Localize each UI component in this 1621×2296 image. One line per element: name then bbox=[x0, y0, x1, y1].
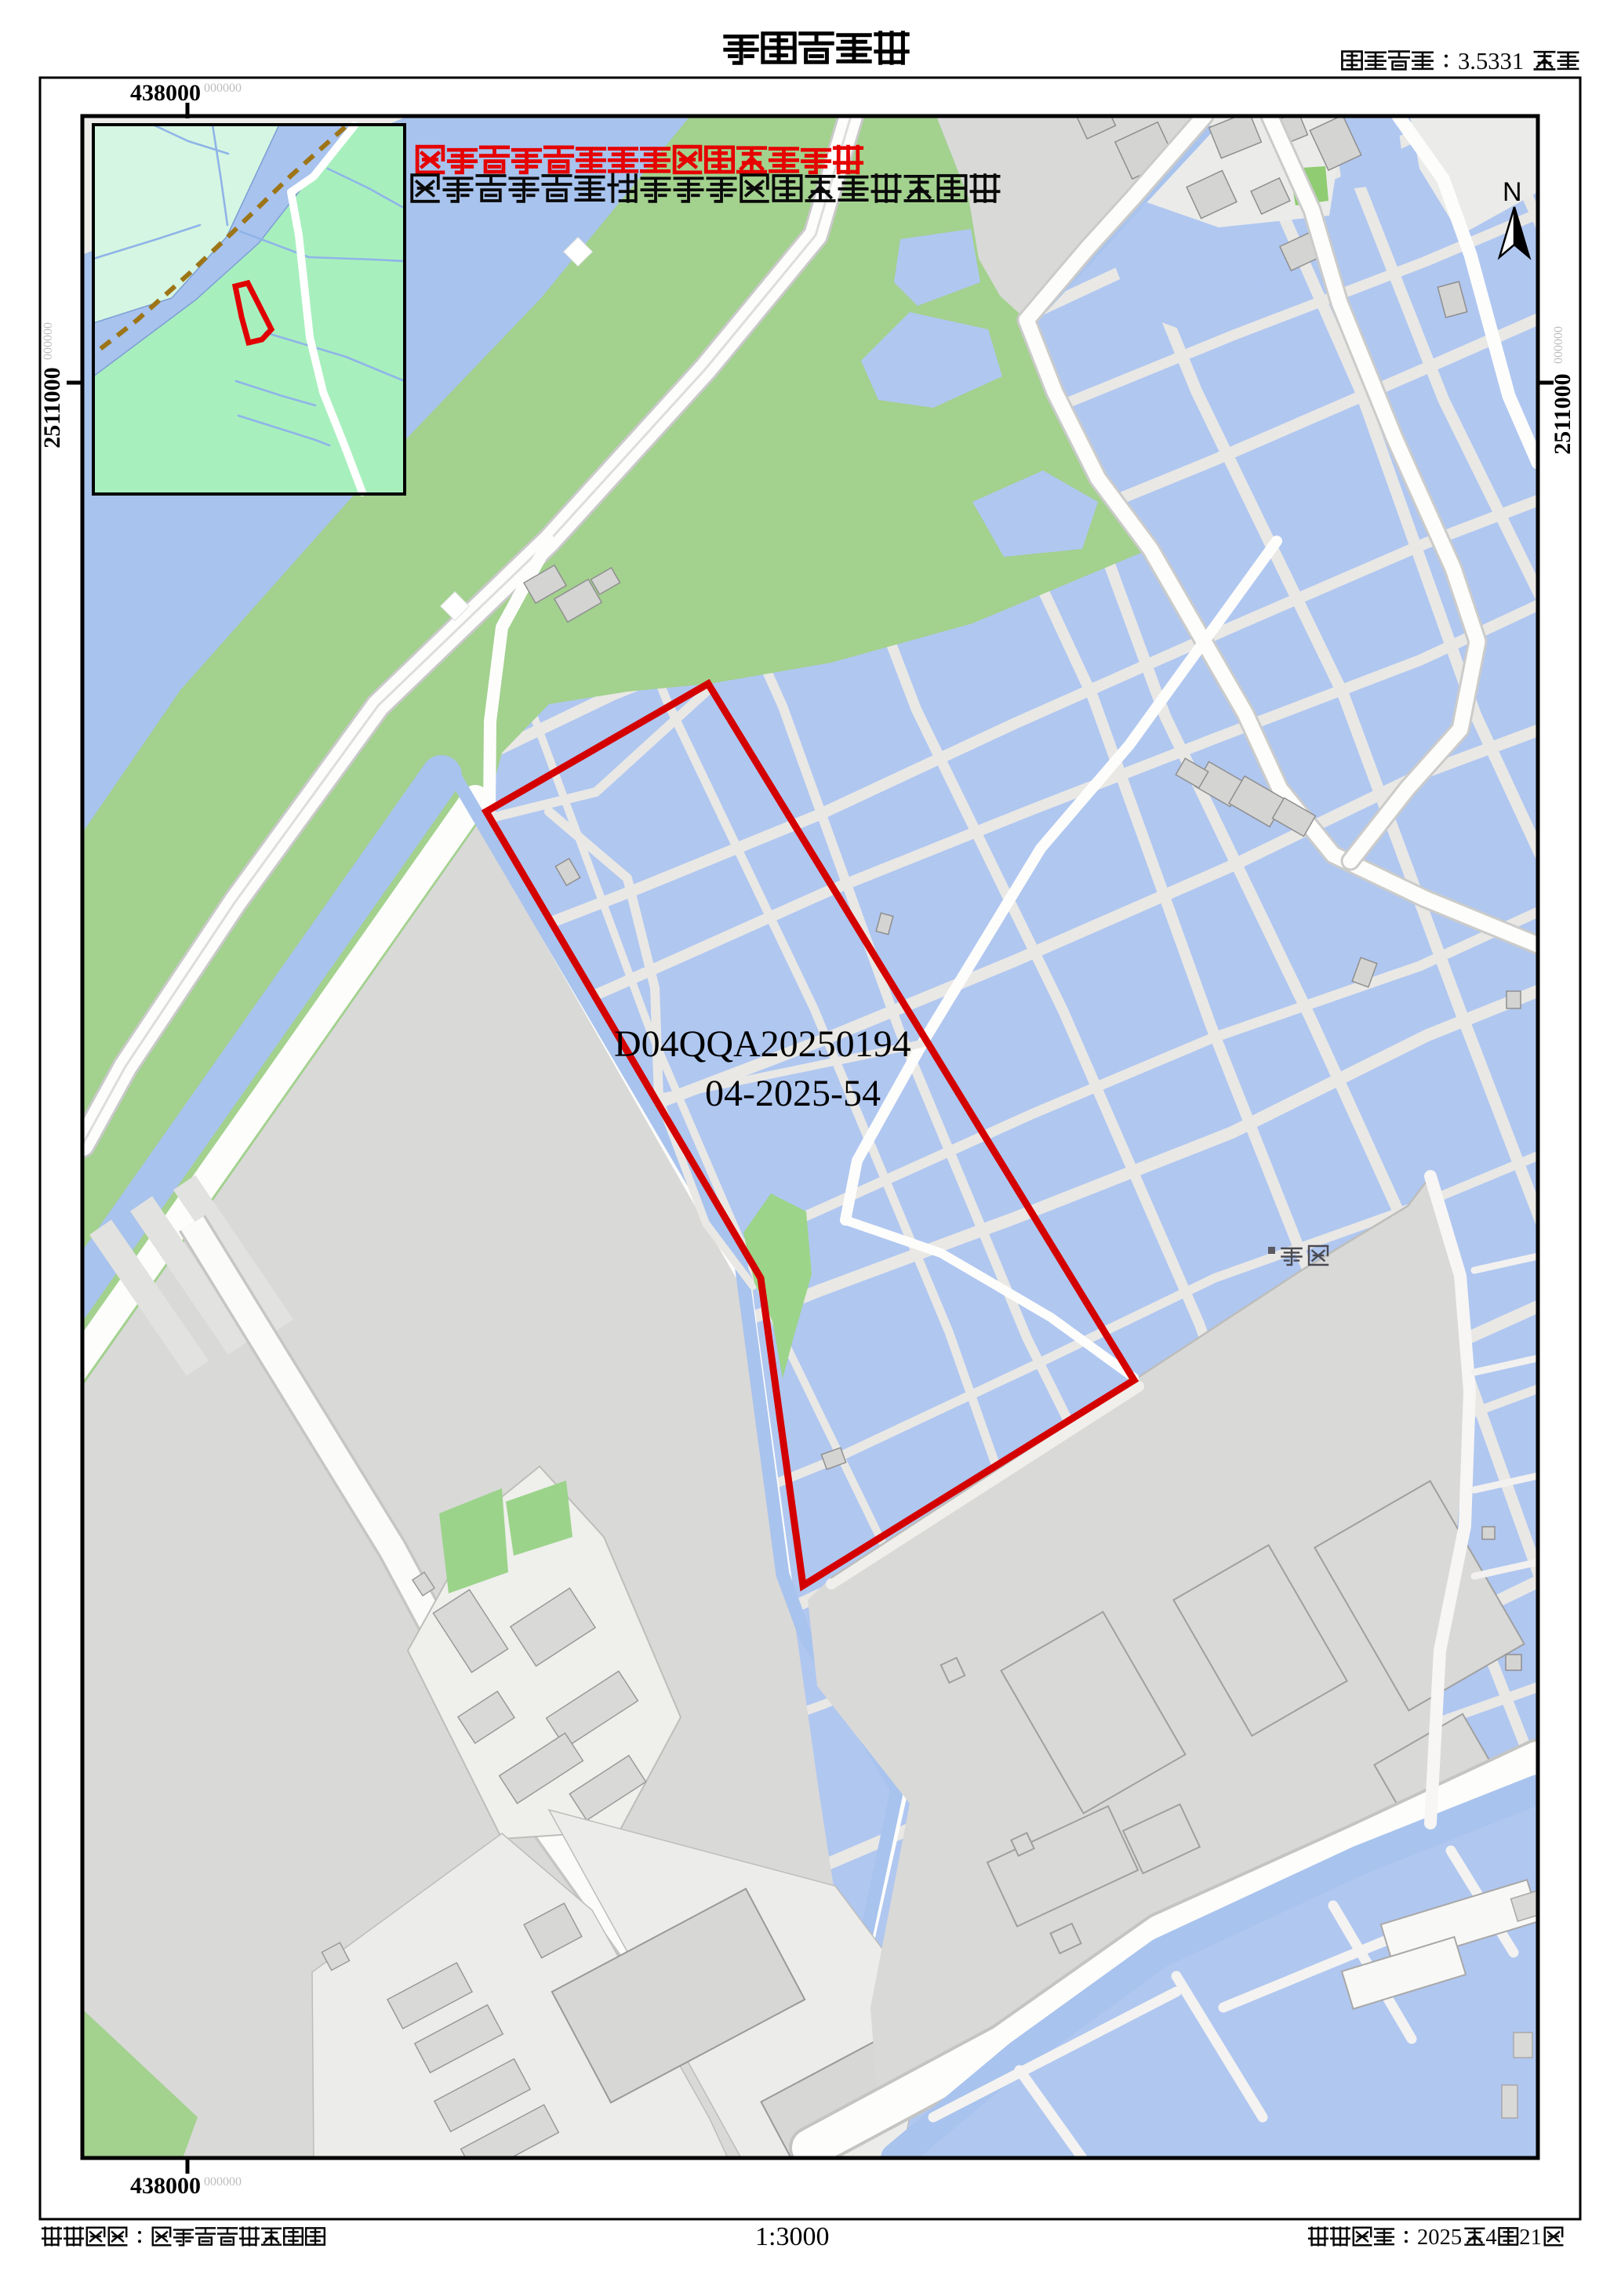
svg-text:000000: 000000 bbox=[1552, 326, 1565, 364]
svg-text:438000: 438000 bbox=[130, 2173, 201, 2199]
svg-text:000000: 000000 bbox=[204, 2175, 242, 2189]
svg-text:D04QQA20250194: D04QQA20250194 bbox=[614, 1023, 911, 1065]
svg-text:000000: 000000 bbox=[204, 82, 242, 95]
svg-text:2025: 2025 bbox=[1417, 2225, 1462, 2250]
svg-text:438000: 438000 bbox=[130, 80, 201, 106]
svg-text:04-2025-54: 04-2025-54 bbox=[705, 1073, 881, 1114]
svg-text:3.5331: 3.5331 bbox=[1458, 48, 1524, 74]
svg-text:4: 4 bbox=[1485, 2225, 1496, 2250]
svg-text:1:3000: 1:3000 bbox=[755, 2222, 829, 2251]
svg-text:2511000: 2511000 bbox=[39, 367, 65, 448]
svg-text:N: N bbox=[1503, 177, 1522, 207]
svg-text:000000: 000000 bbox=[42, 322, 55, 360]
svg-text:21: 21 bbox=[1519, 2225, 1542, 2250]
svg-text:2511000: 2511000 bbox=[1550, 373, 1576, 454]
